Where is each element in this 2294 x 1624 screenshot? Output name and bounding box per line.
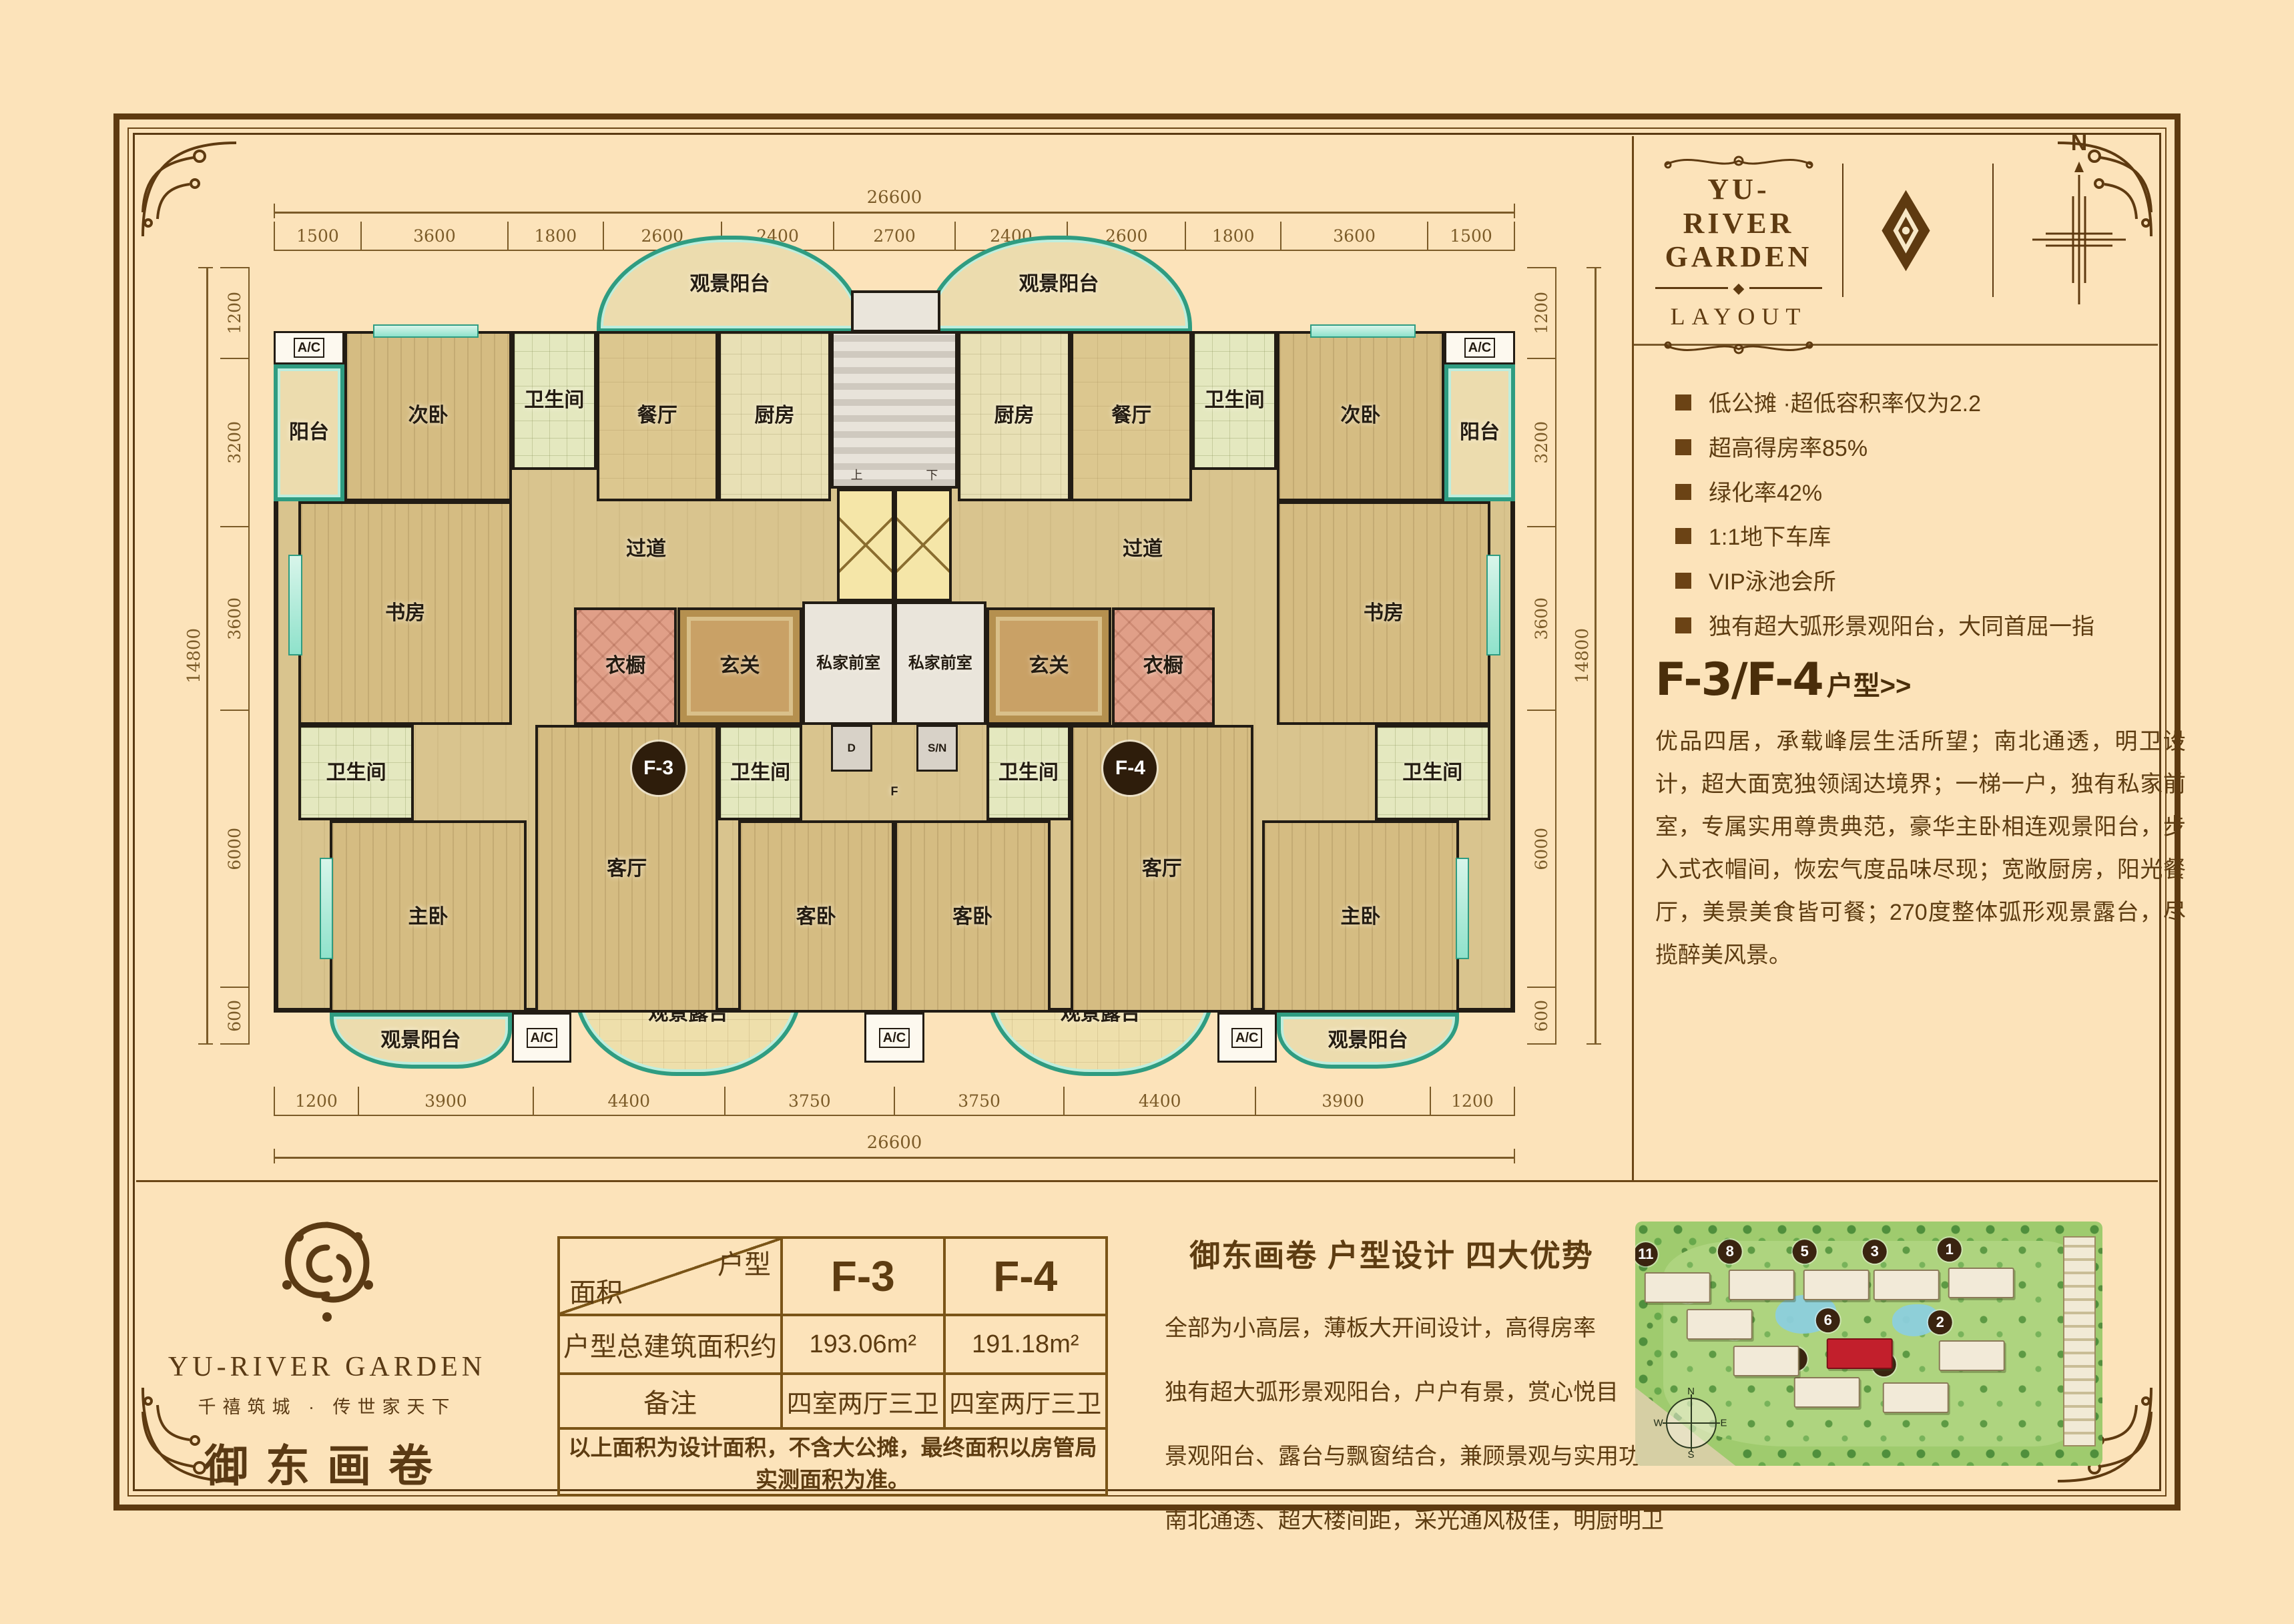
ac-unit-bottom-center: A/C	[864, 1013, 924, 1063]
site-building-number: 5	[1793, 1240, 1817, 1264]
ac-unit-west-top: A/C	[274, 331, 344, 364]
room-bedroom2-left: 次卧	[344, 331, 512, 501]
room-view-balcony-bottom-left: 观景阳台	[330, 1013, 512, 1069]
advantages-title: 御东画卷 户型设计 四大优势	[1165, 1232, 1619, 1276]
compass-s: S	[1687, 1449, 1694, 1460]
dim-segment: 1800	[1186, 222, 1281, 250]
footer-brand-cn: 御东画卷	[154, 1430, 501, 1495]
brand-name-line2: GARDEN	[1655, 240, 1822, 274]
dim-bottom-total: 26600	[274, 1135, 1515, 1159]
room-living-left: 客厅	[535, 725, 718, 1013]
site-building-number: 2	[1928, 1310, 1952, 1334]
room-bathroom-mid-right: 卫生间	[986, 725, 1071, 820]
feature-item: 超高得房率85%	[1675, 435, 2183, 463]
site-building-3: 3	[1874, 1270, 1940, 1300]
room-wardrobe-right: 衣橱	[1112, 607, 1215, 725]
dim-bottom-segments: 12003900440037503750440039001200	[274, 1087, 1515, 1116]
ac-unit-bottom-right: A/C	[1217, 1013, 1277, 1063]
room-bathroom-top-left: 卫生间	[512, 331, 596, 471]
dim-segment: 1200	[1527, 268, 1555, 359]
dim-right-segments: 1200320036006000600	[1527, 267, 1556, 1045]
north-compass: N	[2029, 130, 2129, 310]
room-balcony-west: 阳台	[274, 364, 344, 501]
horizontal-divider	[136, 1180, 2158, 1182]
room-view-balcony-bottom-right: 观景阳台	[1277, 1013, 1459, 1069]
elevator-right	[894, 489, 952, 601]
elevator-left	[837, 489, 894, 601]
dim-segment: 1800	[509, 222, 604, 250]
room-guest-left: 客卧	[738, 820, 894, 1013]
corridor-label-right: 过道	[1123, 532, 1163, 561]
bullet-square-icon	[1675, 573, 1691, 589]
advantage-line: 独有超大弧形景观阳台，户户有景，赏心悦目	[1165, 1381, 1619, 1404]
table-cell-area-f4: 191.18m²	[944, 1315, 1107, 1374]
room-kitchen-left: 厨房	[718, 331, 831, 501]
site-building-number: 11	[1635, 1242, 1658, 1266]
window-strip	[320, 858, 333, 959]
feature-item: 绿化率42%	[1675, 480, 2183, 507]
site-building-5: 5	[1803, 1270, 1870, 1300]
corridor-label-left: 过道	[626, 532, 666, 561]
flourish-ornament-icon	[1655, 337, 1822, 360]
table-cell-remark-f3: 四室两厅三卫	[782, 1374, 944, 1428]
room-bathroom-mid-left: 卫生间	[718, 725, 802, 820]
dim-segment: 3750	[895, 1087, 1065, 1115]
room-front-right: 私家前室	[894, 601, 986, 725]
room-living-right: 客厅	[1071, 725, 1253, 1013]
compass-cross-icon	[2029, 156, 2129, 310]
site-building-7: 7	[1794, 1377, 1860, 1408]
bullet-square-icon	[1675, 484, 1691, 500]
room-bathroom-top-right: 卫生间	[1192, 331, 1276, 471]
unit-type-suffix: 户型>>	[1827, 671, 1912, 701]
table-cell-remark-f4: 四室两厅三卫	[944, 1374, 1107, 1428]
corner-top-label: 户型	[718, 1243, 771, 1282]
room-master-right: 主卧	[1262, 820, 1460, 1013]
flourish-ornament-icon	[1655, 150, 1822, 173]
corner-flourish-icon	[137, 138, 238, 238]
dim-segment: 1200	[1431, 1087, 1515, 1115]
bullet-square-icon	[1675, 439, 1691, 455]
room-guest-right: 客卧	[894, 820, 1051, 1013]
site-building-1: 1	[1948, 1267, 2014, 1298]
table-cell-area-f3: 193.06m²	[782, 1315, 944, 1374]
shaft-f-label: F	[891, 785, 898, 799]
site-building-11: 11	[1645, 1272, 1711, 1303]
table-col-f3: F-3	[782, 1238, 944, 1315]
room-study-left: 书房	[298, 501, 512, 726]
site-building-8: 8	[1729, 1270, 1795, 1300]
table-col-f4: F-4	[944, 1238, 1107, 1315]
site-building-number: 1	[1938, 1238, 1962, 1262]
site-building-number: 8	[1718, 1240, 1742, 1264]
dim-segment: 6000	[220, 711, 248, 988]
dim-segment: 6000	[1527, 711, 1555, 988]
site-building-4: 4	[1883, 1382, 1949, 1412]
room-study-right: 书房	[1277, 501, 1490, 726]
unit-description: 优品四居，承载峰层生活所望；南北通透，明卫设计，超大面宽独领阔达境界；一梯一户，…	[1655, 721, 2186, 977]
diamond-ornament-icon	[1862, 157, 1949, 304]
footer-brand-en: YU-RIVER GARDEN	[154, 1351, 501, 1383]
feature-text: 超高得房率85%	[1709, 435, 1868, 463]
table-row-label: 备注	[559, 1374, 782, 1428]
room-foyer-right: 玄关	[986, 607, 1112, 725]
feature-item: 1:1地下车库	[1675, 524, 2183, 551]
site-building-2: 2	[1939, 1340, 2005, 1371]
feature-text: 低公摊 ·超低容积率仅为2.2	[1709, 390, 1981, 418]
window-strip	[288, 555, 302, 655]
table-footnote: 以上面积为设计面积，不含大公摊，最终面积以房管局实测面积为准。	[559, 1428, 1107, 1495]
unit-badge-f3: F-3	[632, 742, 685, 795]
brand-emblem-icon	[154, 1201, 501, 1342]
bullet-square-icon	[1675, 528, 1691, 544]
window-strip	[373, 324, 479, 338]
advantage-line: 景观阳台、露台与飘窗结合，兼顾景观与实用功能	[1165, 1445, 1619, 1468]
stair-down-label: 下	[926, 466, 938, 483]
feature-item: 独有超大弧形景观阳台，大同首屈一指	[1675, 613, 2183, 641]
site-building-number: 3	[1863, 1240, 1887, 1264]
ac-unit-bottom-left: A/C	[512, 1013, 571, 1063]
room-dining-left: 餐厅	[597, 331, 718, 501]
feature-text: 1:1地下车库	[1709, 524, 1831, 551]
bullet-square-icon	[1675, 617, 1691, 633]
unit-type-heading: F-3/F-4户型>>	[1655, 657, 2189, 703]
site-east-terraces	[2063, 1236, 2096, 1446]
feature-text: 绿化率42%	[1709, 480, 1822, 507]
vertical-divider	[1632, 136, 1634, 1180]
site-building-6: 6	[1827, 1338, 1893, 1369]
dim-segment: 2700	[834, 222, 955, 250]
poster-root: { "brand_top": { "line1": "YU-RIVER", "l…	[0, 0, 2294, 1624]
diamond-divider-icon: ◆	[1733, 280, 1745, 297]
stair-bay-window	[851, 290, 940, 332]
unit-spec-table: 户型 面积 F-3 F-4 户型总建筑面积约 193.06m² 191.18m²…	[557, 1236, 1108, 1497]
dim-segment: 1200	[275, 1087, 359, 1115]
site-plan-map: 1234567891011 N E S W	[1635, 1222, 2102, 1466]
feature-item: 低公摊 ·超低容积率仅为2.2	[1675, 390, 2183, 418]
dim-segment: 3600	[1281, 222, 1428, 250]
logo-divider-line	[1842, 164, 1843, 297]
dim-segment: 4400	[1065, 1087, 1256, 1115]
compass-north-label: N	[2029, 130, 2129, 156]
compass-w: W	[1654, 1417, 1663, 1428]
stairwell: 上 下	[831, 331, 958, 489]
corner-bottom-label: 面积	[569, 1271, 623, 1310]
room-kitchen-right: 厨房	[958, 331, 1071, 501]
brand-lockup-top: YU-RIVER GARDEN ◆ LAYOUT	[1655, 150, 1822, 360]
dim-segment: 3600	[362, 222, 509, 250]
room-foyer-left: 玄关	[677, 607, 803, 725]
window-strip	[1310, 324, 1416, 338]
dim-segment: 3200	[220, 359, 248, 527]
dim-left-segments: 1200320036006000600	[220, 267, 250, 1045]
room-wardrobe-left: 衣橱	[574, 607, 677, 725]
brand-name-line1: YU-RIVER	[1655, 173, 1822, 240]
dim-top-total: 26600	[274, 190, 1515, 214]
dim-segment: 1500	[275, 222, 362, 250]
footer-brand-slogan: 千禧筑城 · 传世家天下	[154, 1392, 501, 1418]
dim-segment: 3900	[359, 1087, 534, 1115]
unit-badge-f4: F-4	[1103, 742, 1157, 795]
feature-text: 独有超大弧形景观阳台，大同首屈一指	[1709, 613, 2094, 641]
stair-up-label: 上	[851, 466, 863, 483]
site-building-9: 9	[1733, 1346, 1799, 1376]
dim-segment: 600	[1527, 988, 1555, 1045]
room-bathroom-east-right: 卫生间	[1375, 725, 1490, 820]
dim-right-total: 14800	[1570, 267, 1597, 1045]
feature-text: VIP泳池会所	[1709, 569, 1836, 596]
site-building-10: 10	[1687, 1309, 1753, 1340]
dim-segment: 4400	[534, 1087, 726, 1115]
ac-unit-east-top: A/C	[1444, 331, 1515, 364]
brand-lockup-footer: YU-RIVER GARDEN 千禧筑城 · 传世家天下 御东画卷	[154, 1201, 501, 1495]
room-bathroom-west-left: 卫生间	[298, 725, 414, 820]
logo-divider-line	[1992, 164, 1994, 297]
window-strip	[1456, 858, 1469, 959]
floor-plan: 观景阳台 观景阳台 观景露台 观景露台 观景阳台 观景阳台 A/C 阳台 次卧 …	[274, 267, 1515, 1045]
site-compass-rose: N E S W	[1666, 1398, 1717, 1448]
room-master-left: 主卧	[330, 820, 527, 1013]
table-corner-cell: 户型 面积	[559, 1238, 782, 1315]
compass-n: N	[1687, 1386, 1695, 1397]
brand-sub-layout: LAYOUT	[1655, 302, 1822, 330]
dim-segment: 3900	[1256, 1087, 1431, 1115]
compass-e: E	[1720, 1417, 1727, 1428]
dim-segment: 600	[220, 988, 248, 1045]
table-row-label: 户型总建筑面积约	[559, 1315, 782, 1374]
dim-segment: 3750	[726, 1087, 895, 1115]
dim-segment: 3600	[220, 527, 248, 711]
feature-item: VIP泳池会所	[1675, 569, 2183, 596]
room-dining-right: 餐厅	[1071, 331, 1192, 501]
site-building-number: 6	[1816, 1308, 1840, 1332]
dim-left-total: 14800	[182, 267, 208, 1045]
feature-list: 低公摊 ·超低容积率仅为2.2 超高得房率85% 绿化率42% 1:1地下车库 …	[1675, 390, 2183, 658]
room-front-left: 私家前室	[802, 601, 894, 725]
unit-type-code: F-3/F-4	[1655, 653, 1823, 706]
advantage-line: 全部为小高层，薄板大开间设计，高得房率	[1165, 1317, 1619, 1340]
advantage-line: 南北通透、超大楼间距，采光通风极佳，明厨明卫	[1165, 1509, 1619, 1532]
room-balcony-east: 阳台	[1444, 364, 1515, 501]
shaft-d: D	[831, 725, 872, 772]
room-bedroom2-right: 次卧	[1277, 331, 1444, 501]
dim-segment: 1200	[220, 268, 248, 359]
advantages-block: 御东画卷 户型设计 四大优势 全部为小高层，薄板大开间设计，高得房率 独有超大弧…	[1165, 1232, 1619, 1532]
dim-segment: 3600	[1527, 527, 1555, 711]
window-strip	[1486, 555, 1500, 655]
shaft-sn: S/N	[916, 725, 957, 772]
dim-top-segments: 1500360018002600240027002400260018003600…	[274, 222, 1515, 251]
bullet-square-icon	[1675, 394, 1691, 411]
dim-segment: 1500	[1428, 222, 1515, 250]
dim-segment: 3200	[1527, 359, 1555, 527]
